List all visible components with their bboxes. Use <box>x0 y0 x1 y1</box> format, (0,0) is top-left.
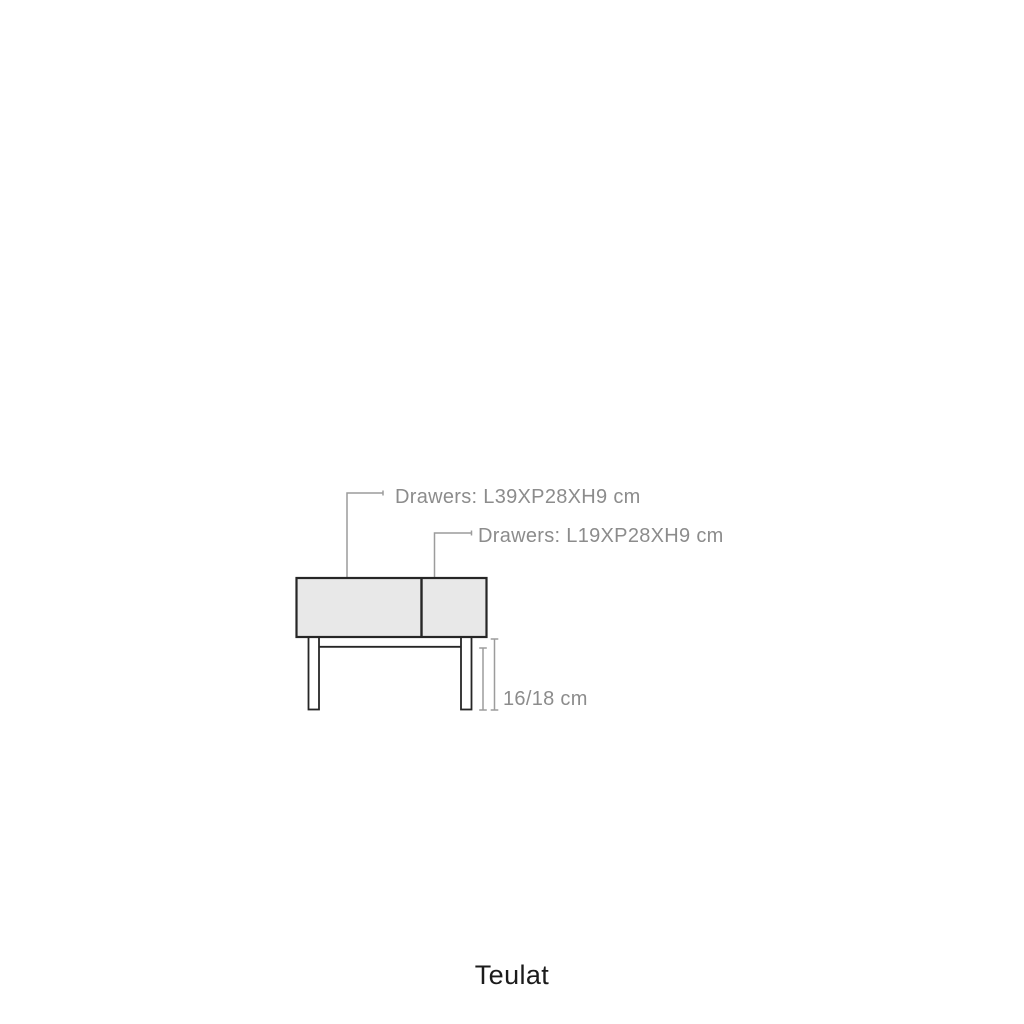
dimension-line-18cm <box>491 639 499 710</box>
sideboard-diagram <box>0 0 1024 1024</box>
left-leg <box>309 637 320 710</box>
product-dimension-page: Drawers: L39XP28XH9 cm Drawers: L19XP28X… <box>0 0 1024 1024</box>
right-leg <box>461 637 472 710</box>
drawer-large-dimensions-label: Drawers: L39XP28XH9 cm <box>395 486 641 508</box>
drawer-small-dimensions-label: Drawers: L19XP28XH9 cm <box>478 525 724 547</box>
base-height-label: 16/18 cm <box>503 688 588 710</box>
brand-logo: Teulat <box>0 961 1024 989</box>
dimension-line-16cm <box>479 648 487 710</box>
cabinet-body <box>297 578 487 637</box>
sideboard-drawing <box>297 578 487 710</box>
